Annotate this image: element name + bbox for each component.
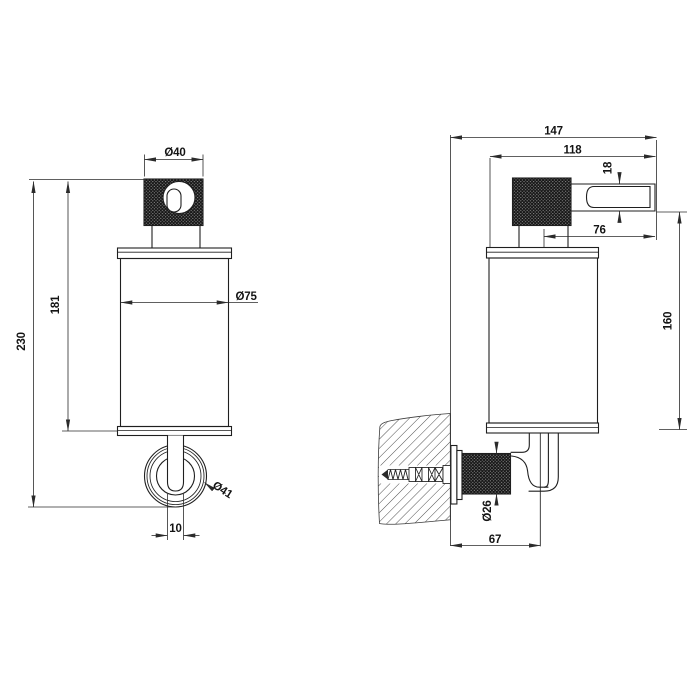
dim-knob-diameter-label: Ø40 (164, 147, 185, 159)
dim-tube-width-label: 10 (169, 523, 181, 535)
dim-upper-depth-label: 118 (564, 145, 583, 157)
technical-drawing-soap-dispenser: Ø40 230 181 Ø75 Ø41 (0, 0, 700, 700)
dim-body-diameter-label: Ø75 (236, 291, 258, 303)
dim-side-height-label: 160 (663, 312, 675, 331)
drawing-background (0, 0, 700, 700)
dim-total-height-label: 230 (16, 332, 28, 351)
dim-spout-length-label: 76 (593, 225, 605, 237)
dim-spout-diameter-label: 18 (603, 161, 615, 174)
dim-mount-diameter-label: Ø26 (482, 500, 494, 521)
drawing-canvas: Ø40 230 181 Ø75 Ø41 (0, 0, 700, 700)
spout-end-cap (167, 189, 181, 212)
dim-body-height-label: 181 (50, 295, 62, 314)
dim-total-depth-label: 147 (544, 126, 563, 138)
dim-mount-depth-label: 67 (489, 534, 501, 546)
pump-tube (168, 436, 184, 492)
